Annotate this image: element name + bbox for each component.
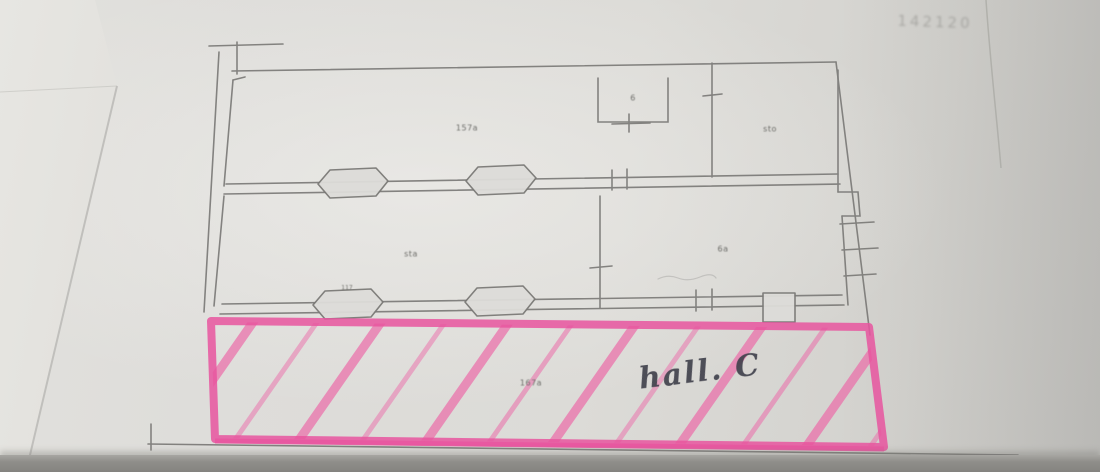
room-label-upper-left: 157a — [456, 124, 478, 133]
floor-plan-photo: 157a 6 sto sta 6a 117 167a hall. C 14212… — [0, 0, 1100, 472]
corner-pencil-note: 142120 — [897, 12, 973, 33]
floor-plan-drawing — [0, 0, 1100, 472]
room-label-mid-right: 6a — [718, 245, 729, 254]
wall-note-label: 117 — [341, 285, 352, 292]
pencil-walls — [146, 42, 1032, 466]
room-label-upper-right: sto — [763, 125, 777, 134]
desk-edge-band — [0, 455, 1100, 472]
room-label-top-square: 6 — [630, 94, 636, 103]
hall-small-label: 167a — [520, 379, 542, 388]
paper-edges — [0, 0, 1001, 472]
room-label-mid-left: sta — [404, 250, 418, 259]
